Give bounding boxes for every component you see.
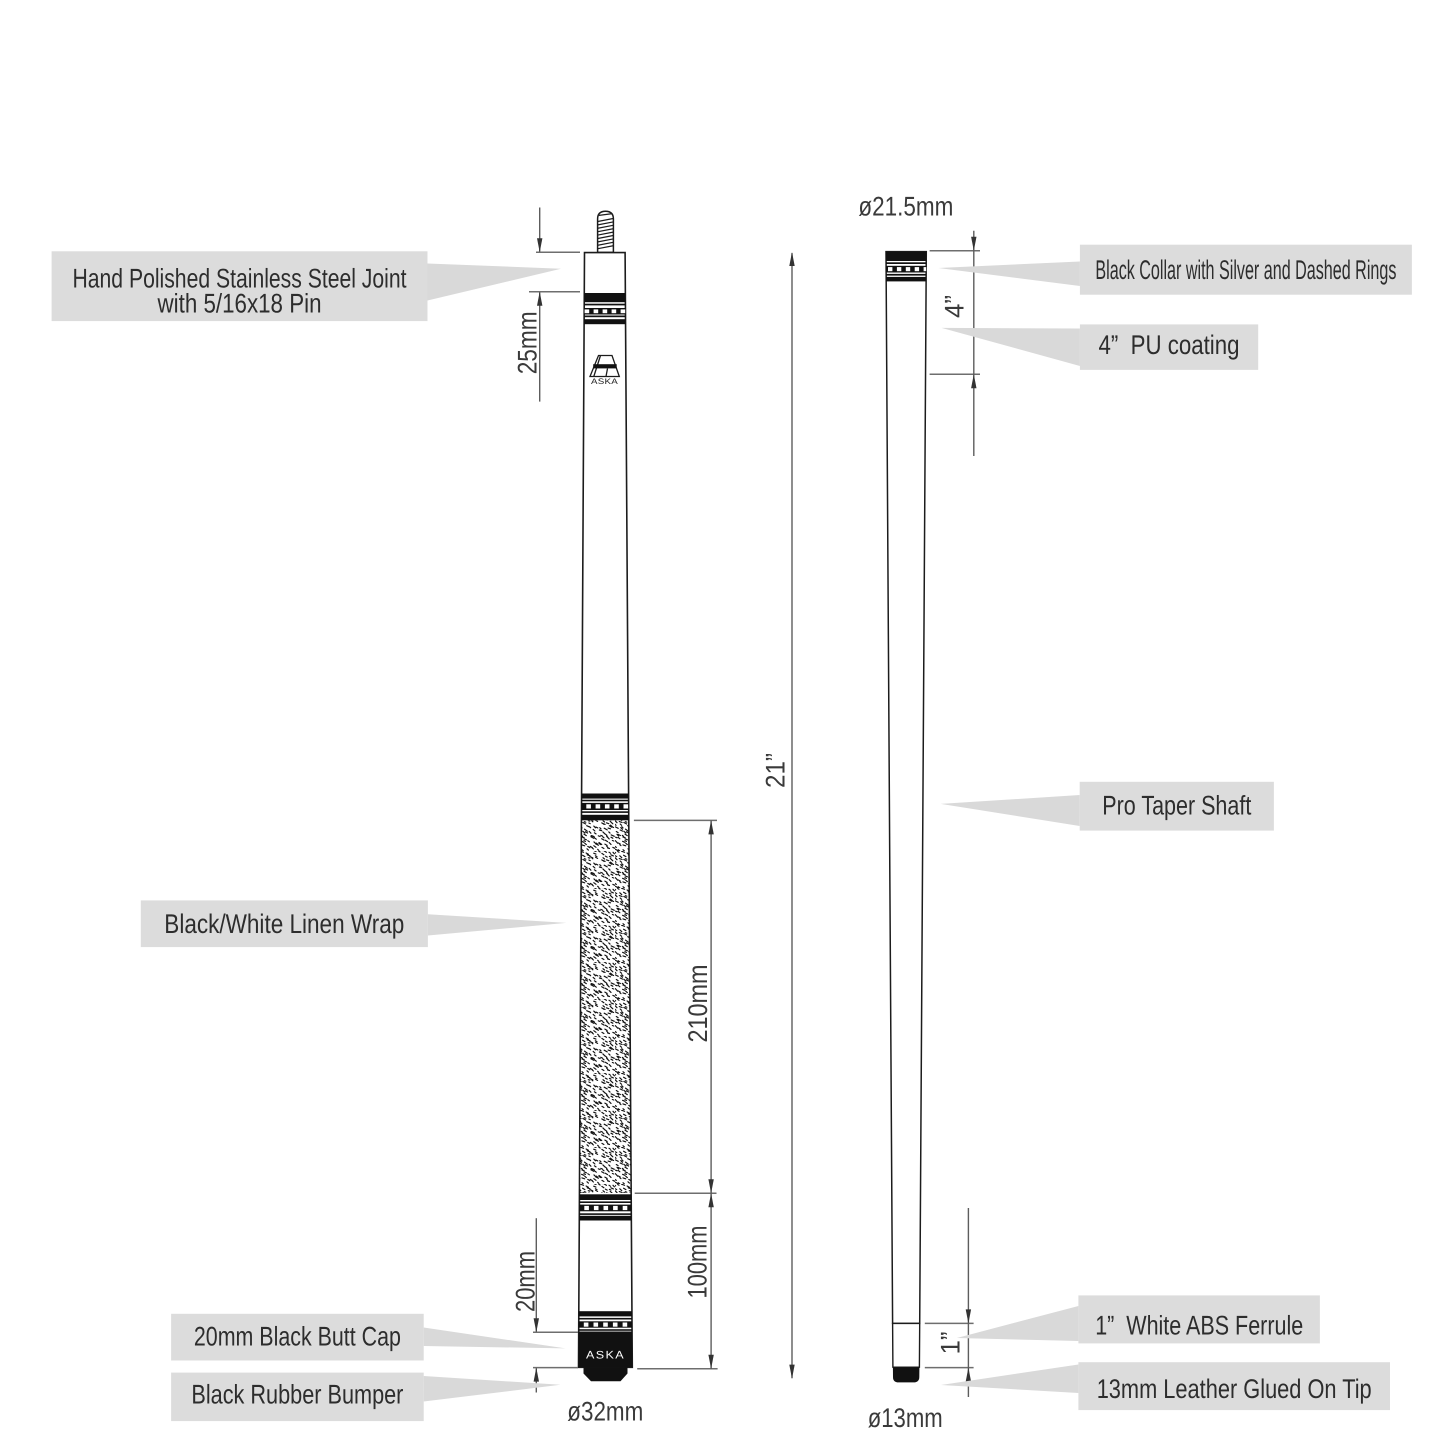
svg-text:1”: 1” <box>936 1332 966 1355</box>
svg-text:ø21.5mm: ø21.5mm <box>858 192 953 222</box>
svg-text:21”: 21” <box>760 753 790 788</box>
svg-text:4” PU coating: 4” PU coating <box>1099 330 1240 360</box>
svg-text:1” White ABS Ferrule: 1” White ABS Ferrule <box>1095 1311 1303 1341</box>
svg-text:20mm Black Butt Cap: 20mm Black Butt Cap <box>194 1322 401 1352</box>
svg-text:with 5/16x18 Pin: with 5/16x18 Pin <box>157 289 322 319</box>
svg-text:ASKA: ASKA <box>586 1350 625 1362</box>
svg-text:ø32mm: ø32mm <box>567 1397 643 1427</box>
svg-text:20mm: 20mm <box>511 1251 541 1312</box>
svg-text:Black Collar with Silver and D: Black Collar with Silver and Dashed Ring… <box>1095 255 1396 285</box>
svg-text:210mm: 210mm <box>683 965 713 1043</box>
svg-text:4”: 4” <box>940 295 970 318</box>
svg-text:13mm Leather Glued On Tip: 13mm Leather Glued On Tip <box>1097 1374 1372 1404</box>
svg-text:ASKA: ASKA <box>591 377 619 386</box>
svg-text:Pro Taper Shaft: Pro Taper Shaft <box>1102 791 1251 821</box>
svg-text:25mm: 25mm <box>512 311 542 374</box>
svg-text:Black/White Linen Wrap: Black/White Linen Wrap <box>164 909 404 939</box>
svg-text:100mm: 100mm <box>683 1226 713 1299</box>
svg-text:ø13mm: ø13mm <box>868 1403 943 1433</box>
svg-text:Black Rubber Bumper: Black Rubber Bumper <box>191 1380 403 1410</box>
